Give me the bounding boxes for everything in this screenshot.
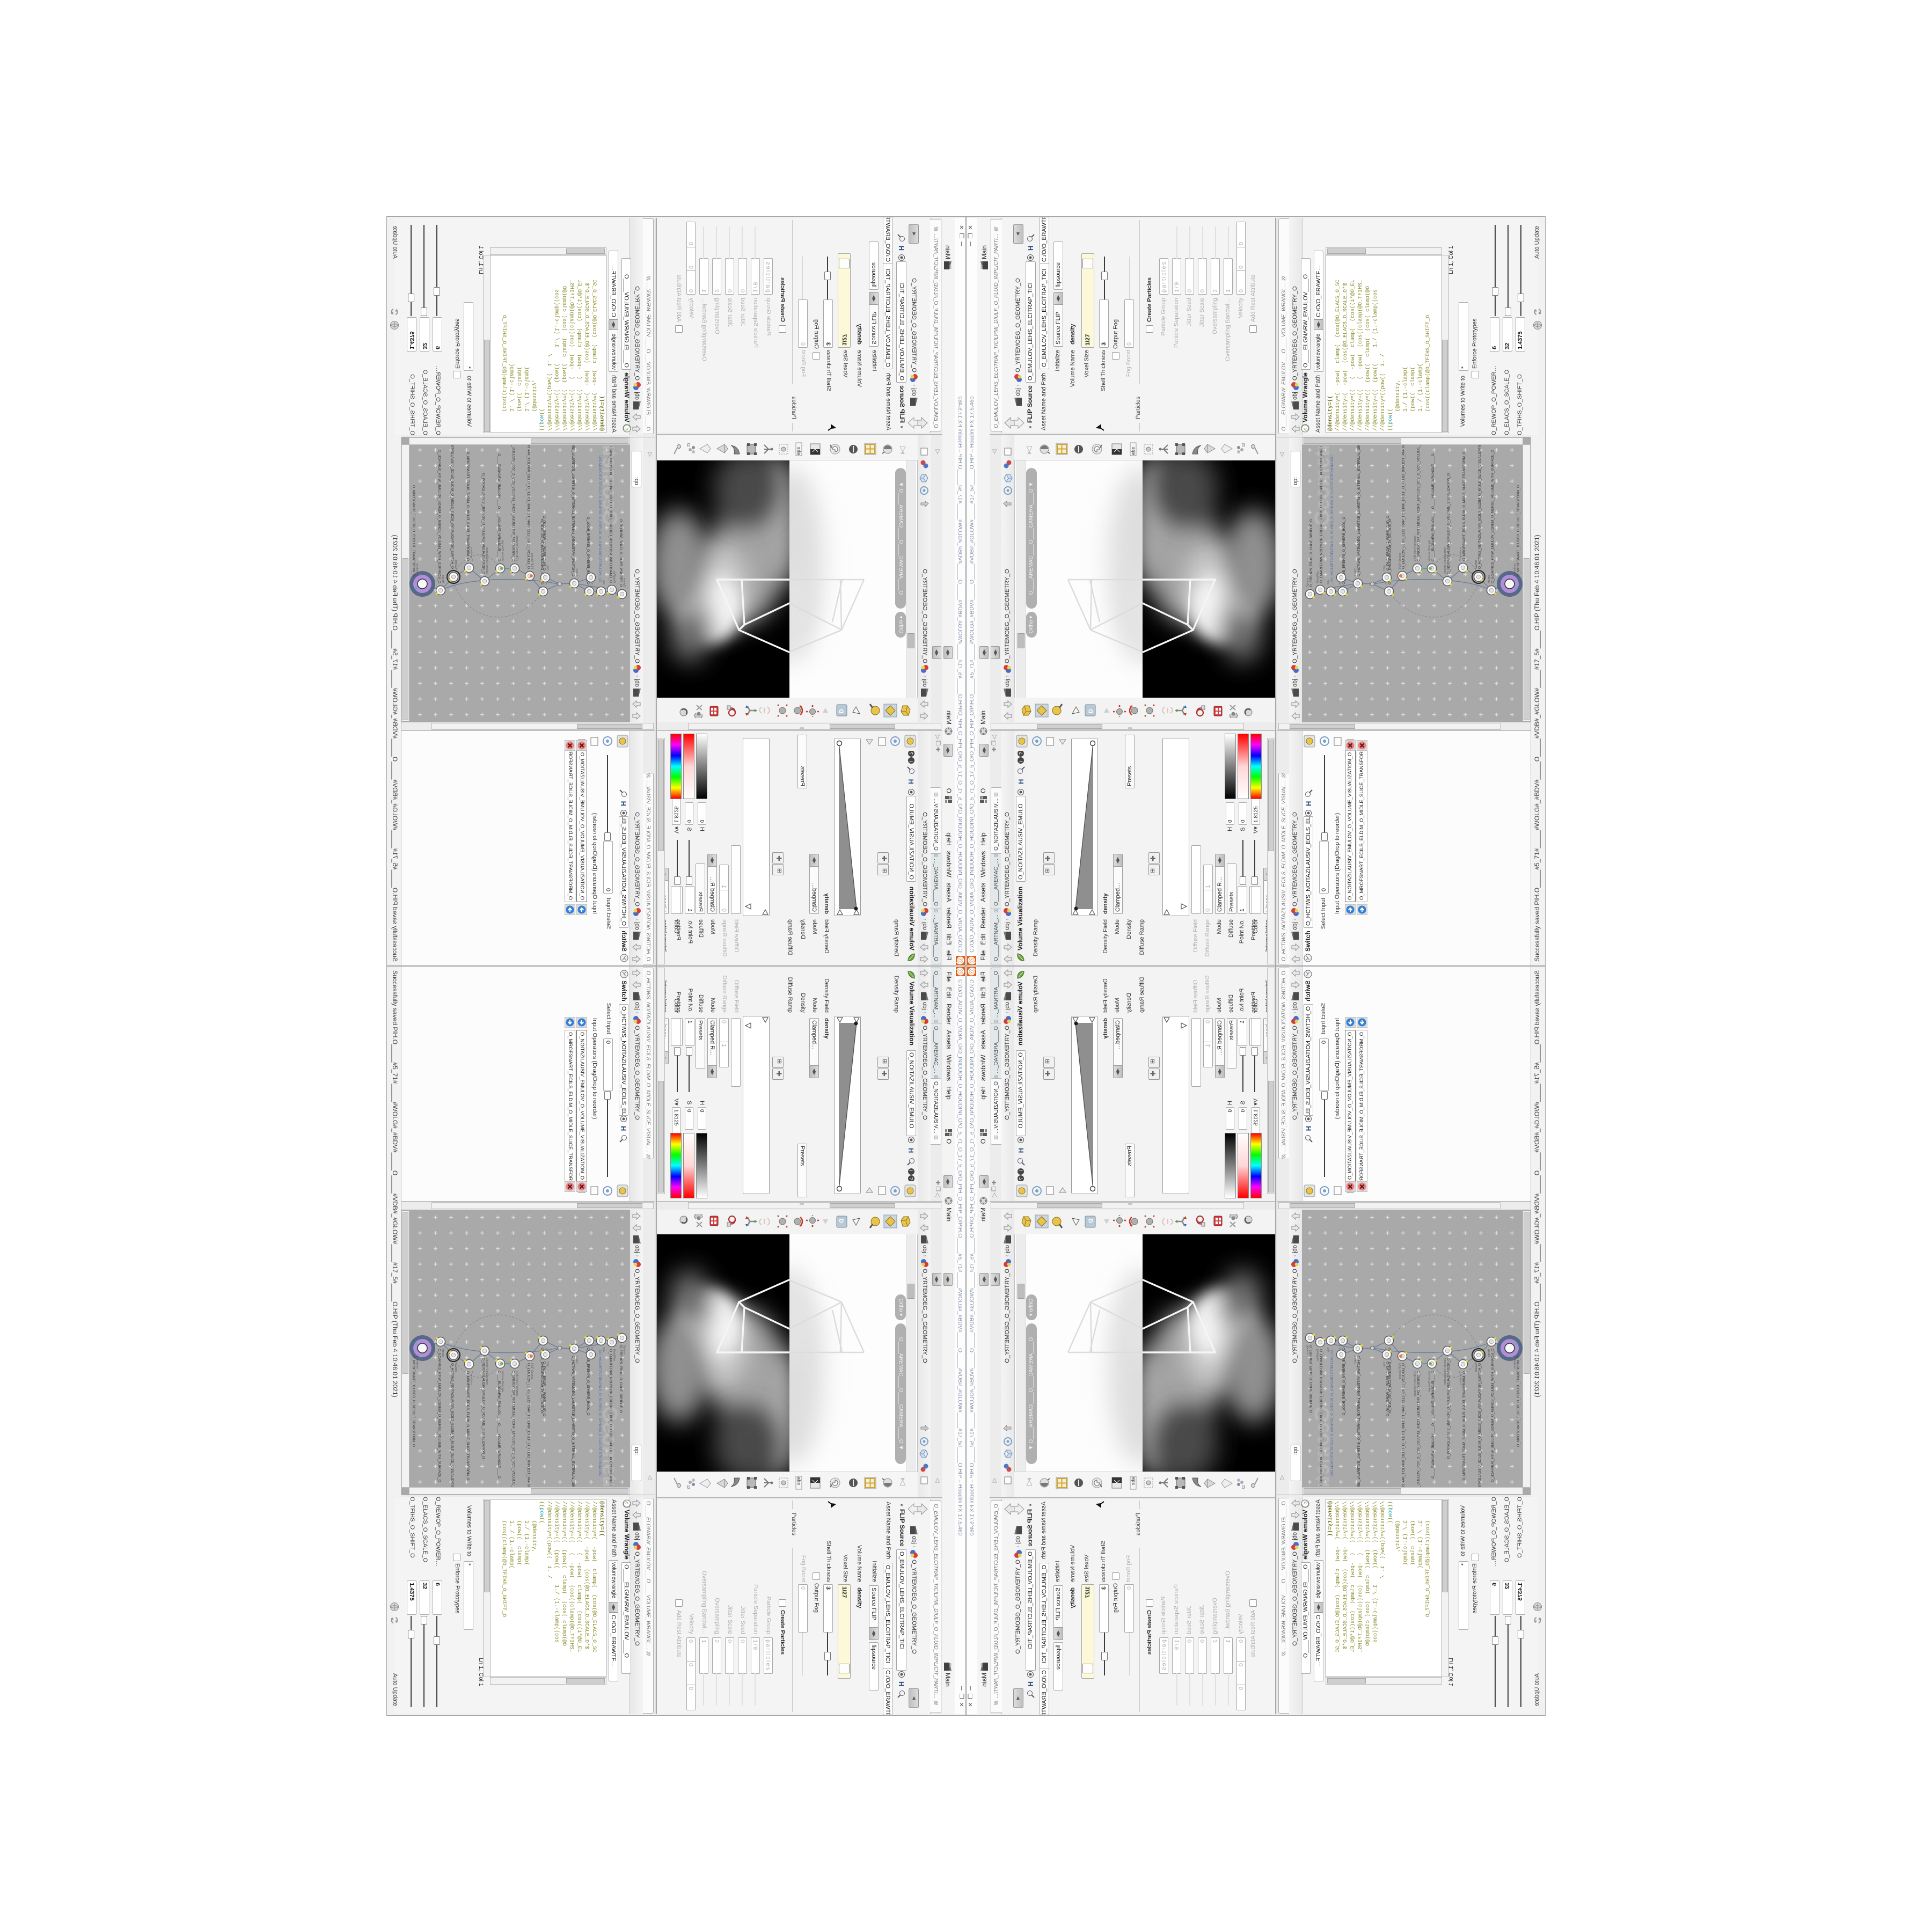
svg-text:D: D — [838, 1219, 844, 1223]
svg-text:FLIP Source: FLIP Source — [530, 1363, 533, 1379]
svg-text:O_EREHPS_EBUC_O_CUBE_SPHERE_O: O_EREHPS_EBUC_O_CUBE_SPHERE_O — [1309, 519, 1313, 587]
svg-text:O_NOITAZILAUSIV_EMULOV_O_VOLUM: O_NOITAZILAUSIV_EMULOV_O_VOLUME_VISUALIZ… — [1447, 1358, 1451, 1459]
svg-text:O_HCTIWS_NOITAZILAUSIV_ECILS_E: O_HCTIWS_NOITAZILAUSIV_ECILS_ELDIM_O_MID… — [450, 437, 454, 569]
svg-text:H: H — [1305, 801, 1313, 806]
svg-text:VDB from Polygons: VDB from Polygons — [515, 536, 518, 561]
svg-text:O_EMARFERIW_NOGYLOP_EREHPS_EBU: O_EMARFERIW_NOGYLOP_EREHPS_EBUC_O_CUBE_S… — [1320, 1349, 1323, 1495]
svg-text:abc: abc — [1130, 1477, 1136, 1485]
svg-text:O____ELGNARW_EMULOV____O____VO: O____ELGNARW_EMULOV____O____VOLUME_WRANG… — [1431, 453, 1435, 561]
svg-text:H: H — [1017, 779, 1025, 784]
svg-text:O_EREHPS_EBUC_O_CUBE_SPHERE_O: O_EREHPS_EBUC_O_CUBE_SPHERE_O — [1309, 1345, 1313, 1413]
svg-text:O_MROFSNART_ECILS_ELDIM_O_MIDL: O_MROFSNART_ECILS_ELDIM_O_MIDLE_SLICE_TR… — [1462, 451, 1466, 561]
svg-text:H: H — [1305, 1126, 1313, 1131]
svg-text:O_HCTIWS_YRTEMOEG_LANRETXE_LAN: O_HCTIWS_YRTEMOEG_LANRETXE_LANRETNI_O_IN… — [571, 437, 575, 576]
svg-text:Transform: Transform — [470, 1371, 473, 1385]
svg-text:Transform: Transform — [415, 563, 419, 576]
svg-text:Volume Wrangle: Volume Wrangle — [501, 540, 504, 561]
svg-text:Sphere: Sphere — [623, 1345, 626, 1355]
svg-text:O_ECAFRUS_HTIW_EMULOV_EGREM_O_: O_ECAFRUS_HTIW_EMULOV_EGREM_O_MERGE_VOLU… — [437, 1349, 441, 1482]
svg-text:O_MROFSNART_TLUSER_O_RESULT_TR: O_MROFSNART_TLUSER_O_RESULT_TRANSFORM_O — [412, 485, 415, 576]
svg-text:Switch: Switch — [575, 568, 578, 576]
svg-text:O_HCTIWS_NOITAZILAUSIV_ECILS_E: O_HCTIWS_NOITAZILAUSIV_ECILS_ELDIM_O_MID… — [450, 1363, 454, 1495]
svg-text:Clip: Clip — [546, 566, 549, 570]
svg-text:O_NOITAZILAUSIV_EMULOV_O_VOLUM: O_NOITAZILAUSIV_EMULOV_O_VOLUME_VISUALIZ… — [481, 1358, 485, 1459]
svg-text:?: ? — [1019, 1177, 1024, 1180]
svg-text:O_SNOGYLOP_YRTEMOEG_MORF_EMULO: O_SNOGYLOP_YRTEMOEG_MORF_EMULOV_BDV_O_VD… — [511, 437, 515, 561]
svg-text:?: ? — [909, 752, 914, 755]
svg-text:O_EMULOV_LEHS_ELCITRAP_TICILPM: O_EMULOV_LEHS_ELCITRAP_TICILPMI_DIULF_O_… — [526, 437, 530, 569]
svg-text:O_EMULOV_LEHS_ELCITRAP_TICILPM: O_EMULOV_LEHS_ELCITRAP_TICILPMI_DIULF_O_… — [1402, 437, 1406, 569]
svg-text:abc: abc — [796, 447, 802, 455]
svg-text:O_NOITAZILAUSIV_EMULOV_O_VOLUM: O_NOITAZILAUSIV_EMULOV_O_VOLUME_VISUALIZ… — [481, 473, 485, 574]
svg-text:O_ECAFRUS_HTIW_EMULOV_EGREM_O_: O_ECAFRUS_HTIW_EMULOV_EGREM_O_MERGE_VOLU… — [1491, 450, 1495, 583]
svg-text:_BO_MOJ.PETS.TIELPSLS_O_5O.REG: _BO_MOJ.PETS.TIELPSLS_O_5O.REG_O_GENUS3_… — [1330, 456, 1334, 585]
svg-text:O_EMARFERIW_NOGYLOP_EREHPS_EBU: O_EMARFERIW_NOGYLOP_EREHPS_EBUC_O_CUBE_S… — [609, 437, 612, 583]
svg-text:D: D — [1088, 1219, 1094, 1223]
svg-text:O_PILC_EROF_O_FORE_CLIP_O: O_PILC_EROF_O_FORE_CLIP_O — [1386, 516, 1390, 570]
svg-text:O_HCTIWS_YRTEMOEG_LANRETXE_LAN: O_HCTIWS_YRTEMOEG_LANRETXE_LANRETNI_O_IN… — [1357, 437, 1361, 576]
svg-text:O_HCTIWS_NOITAZILAUSIV_ECILS_E: O_HCTIWS_NOITAZILAUSIV_ECILS_ELDIM_O_MID… — [1478, 1363, 1482, 1495]
svg-text:File: File — [602, 580, 605, 584]
svg-text:abc: abc — [1130, 447, 1136, 455]
svg-text:O_ECAFRUS_HTIW_EMULOV_EGREM_O_: O_ECAFRUS_HTIW_EMULOV_EGREM_O_MERGE_VOLU… — [437, 450, 441, 583]
svg-text:VDB from Polygons: VDB from Polygons — [515, 1371, 518, 1396]
svg-text:O_PILC_EROF_O_FORE_CLIP_O: O_PILC_EROF_O_FORE_CLIP_O — [1386, 1362, 1390, 1416]
svg-text:O_EREHPS_EBUC_O_CUBE_SPHERE_O: O_EREHPS_EBUC_O_CUBE_SPHERE_O — [619, 1345, 623, 1413]
svg-text:O_MROFSNART_TLUSER_O_RESULT_TR: O_MROFSNART_TLUSER_O_RESULT_TRANSFORM_O — [412, 1356, 415, 1447]
svg-text:D: D — [1088, 709, 1094, 713]
svg-text:?: ? — [909, 1177, 914, 1180]
svg-text:_BO_MOJ.PETS.TIELPSLS_O_5O.REG: _BO_MOJ.PETS.TIELPSLS_O_5O.REG_O_GENUS3_… — [1330, 1347, 1334, 1476]
svg-text:i: i — [1019, 1170, 1024, 1172]
svg-text:O_EMULOV_LEHS_ELCITRAP_TICILPM: O_EMULOV_LEHS_ELCITRAP_TICILPMI_DIULF_O_… — [1402, 1363, 1406, 1495]
svg-text:O_HCTIWS_YRTEMOEG_LANRETXE_LAN: O_HCTIWS_YRTEMOEG_LANRETXE_LANRETNI_O_IN… — [571, 1356, 575, 1495]
svg-text:Switch: Switch — [454, 560, 457, 569]
svg-text:12: 12 — [1242, 443, 1246, 447]
svg-text:?: ? — [1019, 752, 1024, 755]
svg-text:i: i — [909, 1170, 914, 1172]
svg-text:_BO_MOJ.PETS.TIELPSLS_O_5O.REG: _BO_MOJ.PETS.TIELPSLS_O_5O.REG_O_GENUS3_… — [598, 1347, 602, 1476]
svg-text:Volume Visualization: Volume Visualization — [485, 1358, 488, 1385]
svg-text:O_EMULOV_LEHS_ELCITRAP_TICILPM: O_EMULOV_LEHS_ELCITRAP_TICILPMI_DIULF_O_… — [526, 1363, 530, 1495]
svg-text:Merge: Merge — [441, 575, 444, 583]
svg-text:H: H — [907, 779, 915, 784]
svg-text:O_MROFSNART_TLUSER_O_RESULT_TR: O_MROFSNART_TLUSER_O_RESULT_TRANSFORM_O — [1517, 1356, 1520, 1447]
svg-text:12: 12 — [1242, 1485, 1246, 1489]
svg-text:Transform: Transform — [470, 547, 473, 561]
svg-text:O_EMARFERIW_NOGYLOP_EREHPS_EBU: O_EMARFERIW_NOGYLOP_EREHPS_EBUC_O_CUBE_S… — [609, 1349, 612, 1495]
svg-text:O_ECAFRUS_HTIW_EMULOV_EGREM_O_: O_ECAFRUS_HTIW_EMULOV_EGREM_O_MERGE_VOLU… — [1491, 1349, 1495, 1482]
svg-text:FLIP Source: FLIP Source — [530, 553, 533, 569]
svg-text:O_MROFSNART_ECILS_ELDIM_O_MIDL: O_MROFSNART_ECILS_ELDIM_O_MIDLE_SLICE_TR… — [466, 451, 470, 561]
svg-text:O____ELGNARW_EMULOV____O____VO: O____ELGNARW_EMULOV____O____VOLUME_WRANG… — [1431, 1371, 1435, 1479]
svg-text:O_EREHPS_EBUC_O_CUBE_SPHERE_O: O_EREHPS_EBUC_O_CUBE_SPHERE_O — [619, 519, 623, 587]
svg-text:12: 12 — [686, 443, 690, 447]
svg-text:H: H — [897, 1681, 905, 1686]
svg-text:O_HCTIWS_NOITAZILAUSIV_ECILS_E: O_HCTIWS_NOITAZILAUSIV_ECILS_ELDIM_O_MID… — [1478, 437, 1482, 569]
svg-text:Volume Visualization: Volume Visualization — [485, 547, 488, 574]
svg-text:H: H — [619, 801, 627, 806]
svg-text:H: H — [619, 1126, 627, 1131]
svg-text:H: H — [907, 1148, 915, 1153]
svg-text:Clip: Clip — [546, 1362, 549, 1366]
svg-text:PolyWire: PolyWire — [612, 1349, 616, 1361]
svg-text:O_EMARFERIW_NOGYLOP_EREHPS_EBU: O_EMARFERIW_NOGYLOP_EREHPS_EBUC_O_CUBE_S… — [1320, 437, 1323, 583]
svg-text:O_SNOGYLOP_YRTEMOEG_MORF_EMULO: O_SNOGYLOP_YRTEMOEG_MORF_EMULOV_BDV_O_VD… — [1417, 1371, 1421, 1495]
svg-text:O_MROFSNART_ECILS_ELDIM_O_MIDL: O_MROFSNART_ECILS_ELDIM_O_MIDLE_SLICE_TR… — [466, 1371, 470, 1481]
svg-text:Sphere: Sphere — [623, 577, 626, 587]
svg-text:_BO_MOJ.PETS.TIELPSLS_O_5O.REG: _BO_MOJ.PETS.TIELPSLS_O_5O.REG_O_GENUS3_… — [598, 456, 602, 585]
svg-text:O_HCTIWS_YRTEMOEG_LANRETXE_LAN: O_HCTIWS_YRTEMOEG_LANRETXE_LANRETNI_O_IN… — [1357, 1356, 1361, 1495]
svg-text:H: H — [1017, 1148, 1025, 1153]
svg-text:O____ELGNARW_EMULOV____O____VO: O____ELGNARW_EMULOV____O____VOLUME_WRANG… — [497, 453, 501, 561]
svg-text:H: H — [1027, 1681, 1035, 1686]
svg-text:O_SNOGYLOP_YRTEMOEG_MORF_EMULO: O_SNOGYLOP_YRTEMOEG_MORF_EMULOV_BDV_O_VD… — [1417, 437, 1421, 561]
svg-text:Switch: Switch — [575, 1356, 578, 1364]
svg-text:12: 12 — [686, 1485, 690, 1489]
svg-text:PolyWire: PolyWire — [612, 571, 616, 583]
svg-text:O_MROFSNART_TLUSER_O_RESULT_TR: O_MROFSNART_TLUSER_O_RESULT_TRANSFORM_O — [1517, 485, 1520, 576]
svg-text:File: File — [602, 1348, 605, 1352]
svg-text:O_PILC_EROF_O_FORE_CLIP_O: O_PILC_EROF_O_FORE_CLIP_O — [542, 516, 546, 570]
svg-text:O_PILC_EROF_O_FORE_CLIP_O: O_PILC_EROF_O_FORE_CLIP_O — [542, 1362, 546, 1416]
svg-text:Merge: Merge — [441, 1349, 444, 1357]
svg-text:O_MROFSNART_ECILS_ELDIM_O_MIDL: O_MROFSNART_ECILS_ELDIM_O_MIDLE_SLICE_TR… — [1462, 1371, 1466, 1481]
svg-text:H: H — [897, 246, 905, 251]
svg-text:Volume Wrangle: Volume Wrangle — [501, 1371, 504, 1392]
svg-text:D: D — [838, 709, 844, 713]
svg-text:O_NOITAZILAUSIV_EMULOV_O_VOLUM: O_NOITAZILAUSIV_EMULOV_O_VOLUME_VISUALIZ… — [1447, 473, 1451, 574]
svg-text:O_SNOGYLOP_YRTEMOEG_MORF_EMULO: O_SNOGYLOP_YRTEMOEG_MORF_EMULOV_BDV_O_VD… — [511, 1371, 515, 1495]
svg-text:H: H — [1027, 246, 1035, 251]
svg-text:abc: abc — [796, 1477, 802, 1485]
svg-text:Transform: Transform — [415, 1356, 419, 1369]
svg-text:i: i — [1019, 761, 1024, 762]
svg-text:i: i — [909, 761, 914, 762]
svg-text:Switch: Switch — [454, 1363, 457, 1372]
svg-text:O____ELGNARW_EMULOV____O____VO: O____ELGNARW_EMULOV____O____VOLUME_WRANG… — [497, 1371, 501, 1479]
